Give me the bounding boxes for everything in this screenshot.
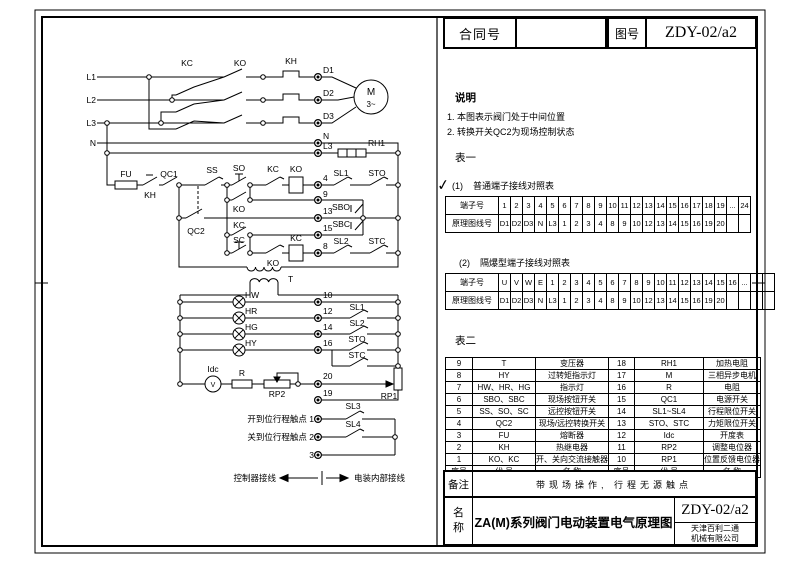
junction-node: [147, 75, 152, 80]
normal-terminal-table-cell: 4: [535, 197, 547, 215]
terminal-center: [317, 454, 320, 457]
explosionproof-terminal-table-cell: V: [511, 274, 523, 292]
junction-node: [248, 198, 253, 203]
schematic-label: SL2: [333, 236, 348, 246]
junction-node: [396, 332, 401, 337]
junction-node: [396, 316, 401, 321]
schematic-label: L3: [323, 141, 333, 151]
schematic-label: M: [367, 87, 375, 98]
schematic-label: D1: [323, 65, 334, 75]
component-list-table: 9T变压器18RH1加热电阻8HY过转矩指示灯17M三相异步电机7HW、HR、H…: [445, 357, 761, 478]
terminal-points: [315, 74, 322, 459]
note-item-2: 2. 转换开关QC2为现场控制状态: [447, 125, 575, 138]
terminal-center: [317, 99, 320, 102]
name-label-char2: 称: [453, 521, 464, 536]
junction-node: [248, 183, 253, 188]
explosionproof-terminal-table-cell: 9: [619, 292, 631, 310]
company-line2: 机械有限公司: [691, 534, 739, 544]
terminal-center: [317, 199, 320, 202]
terminal-center: [317, 418, 320, 421]
junction-node: [393, 435, 398, 440]
terminal-center: [317, 252, 320, 255]
titleblock-drawing-no: ZDY-02/a2: [675, 498, 755, 523]
explosionproof-terminal-table-cell: U: [499, 274, 511, 292]
explosionproof-terminal-table-cell: D2: [511, 292, 523, 310]
component-table-cell: 电阻: [704, 382, 761, 394]
component-table-cell: SL1~SL4: [635, 406, 704, 418]
explosionproof-terminal-table-cell: E: [535, 274, 547, 292]
component-table-cell: 指示灯: [536, 382, 609, 394]
schematic-label: STO: [348, 334, 366, 344]
junction-node: [396, 364, 401, 369]
explosionproof-terminal-table-cell: 16: [691, 292, 703, 310]
component-table-cell: 6: [446, 394, 473, 406]
component-table-cell: 三相异步电机: [704, 370, 761, 382]
explosionproof-terminal-table-row-label: 端子号: [446, 274, 499, 292]
component-table-cell: 18: [609, 358, 635, 370]
normal-terminal-table-row-label: 端子号: [446, 197, 499, 215]
schematic-label: Idc: [207, 364, 219, 374]
schematic-label: T: [288, 274, 293, 284]
terminal-center: [317, 333, 320, 336]
schematic-label: SBC: [333, 219, 350, 229]
component-table-cell: 4: [446, 418, 473, 430]
terminal-center: [317, 217, 320, 220]
junction-node: [361, 216, 366, 221]
normal-terminal-table-cell: 19: [703, 215, 715, 233]
explosionproof-terminal-table-cell: 3: [583, 292, 595, 310]
schematic-label: KO: [233, 204, 246, 214]
schematic-label: D2: [323, 88, 334, 98]
component-table-cell: 变压器: [536, 358, 609, 370]
terminal-center: [317, 317, 320, 320]
normal-terminal-table-cell: 16: [679, 197, 691, 215]
component-table-cell: 熔断器: [536, 430, 609, 442]
explosionproof-terminal-table-cell: 3: [571, 274, 583, 292]
normal-terminal-table-cell: L3: [547, 215, 559, 233]
contract-no-label: 合同号: [445, 19, 517, 47]
schematic-label: KO: [267, 258, 280, 268]
schematic-label: 20: [323, 371, 333, 381]
normal-terminal-table-row-label: 原理图线号: [446, 215, 499, 233]
normal-terminal-table-cell: 7: [571, 197, 583, 215]
schematic-label: 9: [323, 189, 328, 199]
component-table-cell: 14: [609, 406, 635, 418]
schematic-labels: L1L2L3NKCKOKHD1D2D3NL3RH1M3~FUKHQC1SSSOK…: [87, 56, 406, 483]
component-table-cell: 1: [446, 454, 473, 466]
junction-node: [396, 183, 401, 188]
component-table-cell: 远控按钮开关: [536, 406, 609, 418]
note-item-1: 1. 本图表示阀门处于中间位置: [447, 110, 565, 123]
arrow-left: [280, 475, 288, 482]
contract-no-box: 合同号: [443, 17, 607, 49]
schematic-label: 15: [323, 223, 333, 233]
junction-node: [396, 348, 401, 353]
component-table-cell: RP1: [635, 454, 704, 466]
normal-terminal-table-cell: 15: [667, 197, 679, 215]
normal-terminal-table-cell: 9: [595, 197, 607, 215]
explosionproof-terminal-table: 端子号UVWE12345678910111213141516...原理图线号D1…: [445, 273, 775, 310]
drawing-no-label: 图号: [609, 19, 647, 47]
normal-terminal-table-cell: 13: [643, 197, 655, 215]
table1-sub1: (1) 普通端子接线对照表: [452, 179, 554, 192]
schematic-label: SL2: [349, 318, 364, 328]
component-table-cell: 开度表: [704, 430, 761, 442]
component-table-cell: 现场按钮开关: [536, 394, 609, 406]
schematic-label: SL1: [349, 302, 364, 312]
normal-terminal-table-cell: 8: [607, 215, 619, 233]
component-table-cell: 电源开关: [704, 394, 761, 406]
explosionproof-terminal-table-cell: 14: [667, 292, 679, 310]
explosionproof-terminal-table-cell: 2: [559, 274, 571, 292]
schematic-label: 14: [323, 322, 333, 332]
schematic-label: L1: [87, 72, 97, 82]
component-table-cell: SBO、SBC: [473, 394, 536, 406]
junction-node: [261, 98, 266, 103]
schematic-label: KC: [267, 164, 279, 174]
explosionproof-terminal-table-cell: 12: [643, 292, 655, 310]
normal-terminal-table-cell: 9: [619, 215, 631, 233]
terminal-center: [317, 184, 320, 187]
explosionproof-terminal-table-cell: 4: [595, 292, 607, 310]
explosionproof-terminal-table-cell: 19: [703, 292, 715, 310]
normal-terminal-table-cell: 6: [559, 197, 571, 215]
normal-terminal-table-cell: 10: [607, 197, 619, 215]
explosionproof-terminal-table-cell: D3: [523, 292, 535, 310]
remark-text: 带现场操作, 行程无源触点: [473, 472, 755, 496]
component-table-cell: 16: [609, 382, 635, 394]
explosionproof-terminal-table-cell: 14: [703, 274, 715, 292]
table1-sub2-prefix: (2): [459, 258, 470, 268]
explosionproof-terminal-table-cell: 20: [715, 292, 727, 310]
explosionproof-terminal-table-cell: 10: [631, 292, 643, 310]
schematic-label: KC: [233, 220, 245, 230]
component-table-cell: HY: [473, 370, 536, 382]
explosionproof-terminal-table: 端子号UVWE12345678910111213141516...原理图线号D1…: [445, 273, 775, 310]
normal-terminal-table-cell: 12: [631, 197, 643, 215]
junction-node: [105, 121, 110, 126]
junction-node: [178, 316, 183, 321]
explosionproof-terminal-table-cell: 1: [559, 292, 571, 310]
normal-terminal-table: 端子号12345678910111213141516171819...24原理图…: [445, 196, 751, 233]
component-table-cell: RH1: [635, 358, 704, 370]
junction-node: [225, 233, 230, 238]
component-table-cell: 17: [609, 370, 635, 382]
normal-terminal-table-cell: [739, 215, 751, 233]
schematic-label: 电装内部接线: [354, 473, 406, 483]
component-table-cell: 过转矩指示灯: [536, 370, 609, 382]
component-table-cell: 行程限位开关: [704, 406, 761, 418]
normal-terminal-table-cell: D3: [523, 215, 535, 233]
junction-node: [178, 348, 183, 353]
remark-row: 备注 带现场操作, 行程无源触点: [445, 472, 755, 498]
junction-node: [296, 382, 301, 387]
schematic-label: KH: [144, 190, 156, 200]
explosionproof-terminal-table-row-label: 原理图线号: [446, 292, 499, 310]
junction-node: [177, 216, 182, 221]
junction-node: [225, 183, 230, 188]
explosionproof-terminal-table-cell: 6: [607, 274, 619, 292]
normal-terminal-table-cell: D2: [511, 215, 523, 233]
component-table-cell: 2: [446, 442, 473, 454]
drawing-no-value: ZDY-02/a2: [647, 19, 755, 47]
component-table-cell: QC1: [635, 394, 704, 406]
schematic-label: STC: [369, 236, 386, 246]
junction-node: [396, 151, 401, 156]
schematic-label: RP2: [269, 389, 286, 399]
junction-node: [178, 300, 183, 305]
normal-terminal-table-cell: D1: [499, 215, 511, 233]
normal-terminal-table-cell: 1: [499, 197, 511, 215]
junction-node: [248, 251, 253, 256]
title-block: 备注 带现场操作, 行程无源触点 名 称 ZA(M)系列阀门电动装置电气原理图 …: [443, 470, 757, 546]
schematic-label: HY: [245, 338, 257, 348]
terminal-center: [317, 142, 320, 145]
component-table-cell: 15: [609, 394, 635, 406]
schematic-label: D3: [323, 111, 334, 121]
terminal-center: [317, 349, 320, 352]
schematic-label: 8: [323, 241, 328, 251]
normal-terminal-table-cell: 24: [739, 197, 751, 215]
component-table-cell: STO、STC: [635, 418, 704, 430]
heater-RH1: [338, 149, 366, 157]
schematic-label: SO: [233, 163, 246, 173]
schematic-label: KO: [290, 164, 303, 174]
explosionproof-terminal-table-cell: 5: [595, 274, 607, 292]
coil-KC: [289, 245, 303, 261]
schematic-label: L3: [87, 118, 97, 128]
junction-node: [159, 121, 164, 126]
remark-label: 备注: [445, 472, 473, 496]
schematic-label: HW: [245, 290, 259, 300]
normal-terminal-table-cell: 20: [715, 215, 727, 233]
schematic-label: KC: [181, 58, 193, 68]
explosionproof-terminal-table-cell: [727, 292, 739, 310]
schematic-label: QC1: [160, 169, 178, 179]
component-table-cell: 12: [609, 430, 635, 442]
table2-title: 表二: [455, 333, 476, 348]
component-table-cell: RP2: [635, 442, 704, 454]
junction-node: [396, 300, 401, 305]
normal-terminal-table-cell: 2: [571, 215, 583, 233]
check-icon: ✓: [436, 175, 451, 195]
arrow-right: [340, 475, 348, 482]
component-table-cell: 力矩限位开关: [704, 418, 761, 430]
schematic-label: SBO: [332, 202, 350, 212]
schematic-label: N: [323, 131, 329, 141]
component-table-cell: HW、HR、HG: [473, 382, 536, 394]
junction-node: [225, 251, 230, 256]
coil-KO: [289, 177, 303, 193]
normal-terminal-table-cell: 18: [703, 197, 715, 215]
component-table-cell: QC2: [473, 418, 536, 430]
explosionproof-terminal-table-cell: 13: [655, 292, 667, 310]
normal-terminal-table-cell: 17: [691, 197, 703, 215]
schematic-label: KH: [285, 56, 297, 66]
schematic-label: 19: [323, 388, 333, 398]
explosionproof-terminal-table-cell: N: [535, 292, 547, 310]
schematic-label: 3: [309, 450, 314, 460]
component-table-cell: 7: [446, 382, 473, 394]
component-table-cell: SS、SO、SC: [473, 406, 536, 418]
component-table-cell: FU: [473, 430, 536, 442]
schematic-label: HG: [245, 322, 258, 332]
component-table-cell: 加热电阻: [704, 358, 761, 370]
normal-terminal-table-cell: 16: [691, 215, 703, 233]
normal-terminal-table-cell: 10: [631, 215, 643, 233]
notes-title: 说明: [455, 90, 476, 105]
component-table-cell: 9: [446, 358, 473, 370]
normal-terminal-table-cell: 12: [643, 215, 655, 233]
component-table-cell: 热继电器: [536, 442, 609, 454]
component-table-cell: KO、KC: [473, 454, 536, 466]
junction-node: [396, 216, 401, 221]
schematic-label: STC: [349, 350, 366, 360]
schematic-label: SL4: [345, 419, 360, 429]
schematic-label: FU: [120, 169, 131, 179]
schematic-label: KC: [290, 233, 302, 243]
normal-terminal-table-cell: 11: [619, 197, 631, 215]
table1-title: 表一: [455, 150, 476, 165]
table1-sub1-title: 普通端子接线对照表: [473, 181, 554, 191]
explosionproof-terminal-table-cell: 9: [643, 274, 655, 292]
normal-terminal-table-cell: 5: [547, 197, 559, 215]
component-table-cell: 位置反馈电位器: [704, 454, 761, 466]
component-table: 9T变压器18RH1加热电阻8HY过转矩指示灯17M三相异步电机7HW、HR、H…: [445, 357, 761, 478]
component-table-cell: 13: [609, 418, 635, 430]
potentiometer-RP1: [394, 368, 402, 390]
junction-node: [178, 332, 183, 337]
explosionproof-terminal-table-cell: 12: [679, 274, 691, 292]
component-table-cell: 现场/远控转换开关: [536, 418, 609, 430]
company-line1: 天津百利二通: [691, 524, 739, 534]
drawing-sheet: L1L2L3NKCKOKHD1D2D3NL3RH1M3~FUKHQC1SSSOK…: [0, 0, 800, 566]
name-label: 名 称: [445, 498, 473, 544]
terminal-center: [317, 234, 320, 237]
component-table-cell: M: [635, 370, 704, 382]
company-name: 天津百利二通 机械有限公司: [675, 523, 755, 544]
name-label-char1: 名: [453, 506, 464, 521]
explosionproof-terminal-table-cell: [751, 292, 763, 310]
explosionproof-terminal-table-cell: 8: [631, 274, 643, 292]
normal-terminal-table-cell: 3: [523, 197, 535, 215]
schematic-label: SL3: [345, 401, 360, 411]
name-row: 名 称 ZA(M)系列阀门电动装置电气原理图 ZDY-02/a2 天津百利二通 …: [445, 498, 755, 544]
explosionproof-terminal-table-cell: [739, 292, 751, 310]
schematic-label: 控制器接线: [233, 473, 276, 483]
explosionproof-terminal-table-cell: L3: [547, 292, 559, 310]
explosionproof-terminal-table-cell: 15: [715, 274, 727, 292]
explosionproof-terminal-table-cell: 7: [619, 274, 631, 292]
normal-terminal-table-cell: 15: [679, 215, 691, 233]
terminal-center: [317, 383, 320, 386]
drawing-no-box: 图号 ZDY-02/a2: [607, 17, 757, 49]
terminal-center: [317, 76, 320, 79]
explosionproof-terminal-table-cell: 13: [691, 274, 703, 292]
component-table-cell: 3: [446, 430, 473, 442]
normal-terminal-table-cell: 14: [655, 197, 667, 215]
terminal-center: [317, 152, 320, 155]
schematic-label: QC2: [187, 226, 205, 236]
explosionproof-terminal-table-cell: 10: [655, 274, 667, 292]
schematic-label: RP1: [381, 391, 398, 401]
schematic-label: 4: [323, 173, 328, 183]
component-table-cell: 10: [609, 454, 635, 466]
drawing-title: ZA(M)系列阀门电动装置电气原理图: [473, 498, 675, 544]
explosionproof-terminal-table-cell: 15: [679, 292, 691, 310]
explosionproof-terminal-table-cell: 2: [571, 292, 583, 310]
table1-sub2: (2) 隔爆型端子接线对照表: [459, 256, 570, 269]
schematic-label: HR: [245, 306, 257, 316]
schematic-label: KO: [234, 58, 247, 68]
normal-terminal-table-cell: 3: [583, 215, 595, 233]
junction-node: [248, 233, 253, 238]
schematic-label: 10: [323, 290, 333, 300]
rp1-wiper-arrow: [386, 381, 393, 387]
junction-node: [261, 75, 266, 80]
component-table-cell: 5: [446, 406, 473, 418]
explosionproof-terminal-table-cell: 1: [547, 274, 559, 292]
junction-node: [178, 382, 183, 387]
component-table-cell: 开、关向交流接触器: [536, 454, 609, 466]
table1-sub1-prefix: (1): [452, 181, 463, 191]
lamp-symbols: [233, 296, 245, 356]
junction-node: [261, 121, 266, 126]
normal-terminal-table-cell: N: [535, 215, 547, 233]
terminal-center: [317, 122, 320, 125]
junction-node: [170, 98, 175, 103]
explosionproof-terminal-table-cell: [751, 274, 763, 292]
explosionproof-terminal-table-cell: 4: [583, 274, 595, 292]
terminal-center: [317, 301, 320, 304]
table1-sub2-title: 隔爆型端子接线对照表: [480, 258, 570, 268]
normal-terminal-table: 端子号12345678910111213141516171819...24原理图…: [445, 196, 751, 233]
explosionproof-terminal-table-cell: 16: [727, 274, 739, 292]
normal-terminal-table-cell: 4: [595, 215, 607, 233]
junction-node: [177, 183, 182, 188]
fuse-FU: [115, 181, 137, 189]
resistor-R: [232, 380, 252, 388]
schematic-label: SS: [206, 165, 218, 175]
explosionproof-terminal-table-cell: 8: [607, 292, 619, 310]
component-table-cell: T: [473, 358, 536, 370]
component-table-cell: KH: [473, 442, 536, 454]
component-table-cell: 调整电位器: [704, 442, 761, 454]
component-table-cell: Idc: [635, 430, 704, 442]
contract-no-value: [517, 19, 605, 47]
normal-terminal-table-cell: 14: [667, 215, 679, 233]
schematic-label: STO: [368, 168, 386, 178]
schematic-label: 开到位行程触点 1: [247, 414, 314, 424]
terminal-center: [317, 399, 320, 402]
schematic-label: 16: [323, 338, 333, 348]
normal-terminal-table-cell: 1: [559, 215, 571, 233]
explosionproof-terminal-table-cell: 11: [667, 274, 679, 292]
normal-terminal-table-cell: 13: [655, 215, 667, 233]
junction-node: [225, 198, 230, 203]
junction-node: [396, 251, 401, 256]
schematic-label: SC: [233, 235, 245, 245]
normal-terminal-table-cell: 19: [715, 197, 727, 215]
schematic-label: L2: [87, 95, 97, 105]
normal-terminal-table-cell: ...: [727, 197, 739, 215]
component-table-cell: R: [635, 382, 704, 394]
schematic-label: N: [90, 138, 96, 148]
schematic-label: RH1: [368, 138, 385, 148]
normal-terminal-table-cell: 8: [583, 197, 595, 215]
schematic-label: SL1: [333, 168, 348, 178]
schematic-label: V: [211, 382, 216, 389]
